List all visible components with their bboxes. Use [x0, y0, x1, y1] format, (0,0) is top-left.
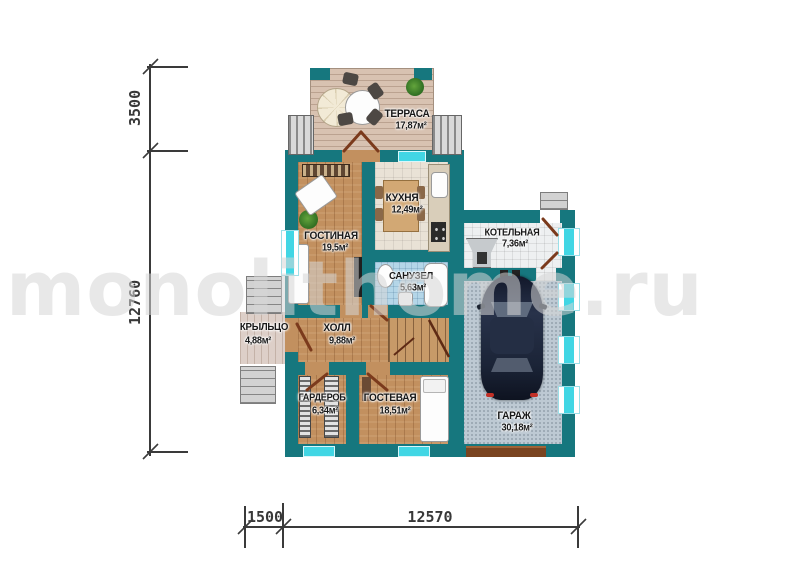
- stair-direction-arrow: [394, 338, 414, 355]
- stair-rail: [429, 320, 449, 357]
- dimension-lines-bottom: [238, 503, 586, 548]
- floor-plan: monolithome.ru: [0, 0, 794, 576]
- door-swings: [297, 132, 557, 390]
- dimension-lines-left: [143, 59, 188, 459]
- terrace-door-left: [344, 132, 361, 151]
- wardrobe-door: [307, 374, 327, 390]
- line-overlay: [0, 0, 794, 576]
- entrance-door: [297, 324, 311, 350]
- boiler-entrance-door: [543, 219, 557, 235]
- guest-door: [368, 374, 387, 390]
- bathroom-door: [371, 306, 387, 320]
- boiler-garage-door: [542, 253, 557, 268]
- terrace-door-right: [361, 132, 378, 151]
